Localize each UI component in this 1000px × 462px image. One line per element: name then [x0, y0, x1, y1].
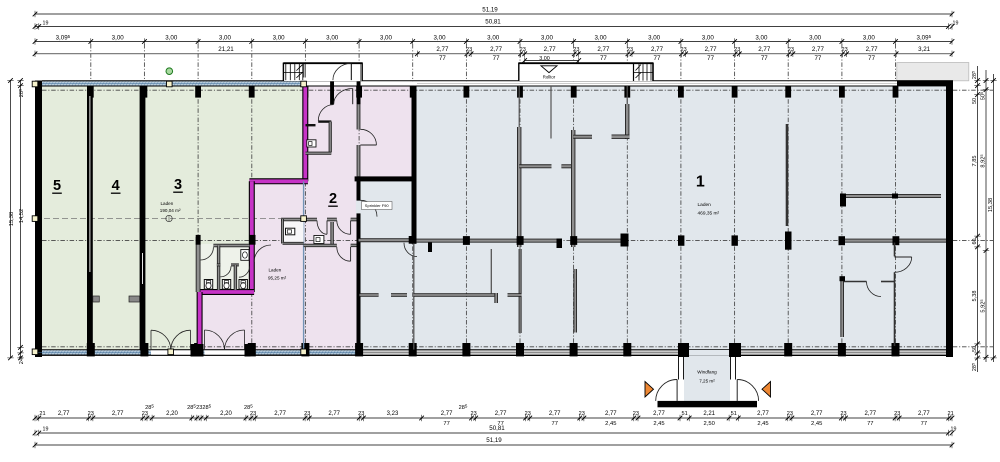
svg-text:51,19: 51,19 — [486, 437, 502, 444]
svg-text:23: 23 — [787, 411, 793, 417]
svg-text:15,38: 15,38 — [988, 198, 994, 213]
svg-text:77: 77 — [921, 421, 927, 427]
svg-text:23: 23 — [841, 47, 847, 53]
svg-text:7,85: 7,85 — [972, 156, 978, 167]
svg-text:77: 77 — [814, 55, 821, 62]
svg-text:3,00: 3,00 — [863, 34, 876, 41]
svg-text:Laden: Laden — [161, 201, 174, 206]
svg-text:2,77: 2,77 — [705, 46, 718, 53]
svg-text:2,77: 2,77 — [918, 411, 930, 417]
svg-text:51: 51 — [681, 411, 687, 417]
svg-text:3,00: 3,00 — [219, 34, 232, 41]
svg-text:21,21: 21,21 — [218, 46, 234, 53]
svg-text:2: 2 — [329, 191, 337, 207]
svg-text:1: 1 — [696, 174, 705, 191]
svg-text:23: 23 — [840, 411, 846, 417]
svg-text:77: 77 — [551, 421, 557, 427]
svg-text:3,00: 3,00 — [326, 34, 339, 41]
svg-text:2,77: 2,77 — [605, 411, 617, 417]
svg-text:Rolltor: Rolltor — [543, 75, 556, 80]
svg-text:2,77: 2,77 — [758, 46, 771, 53]
svg-text:3,00: 3,00 — [433, 34, 446, 41]
svg-text:2,77: 2,77 — [495, 411, 507, 417]
svg-text:2,77: 2,77 — [549, 411, 561, 417]
svg-text:2,77: 2,77 — [866, 46, 879, 53]
svg-text:23: 23 — [633, 411, 639, 417]
svg-text:3,00: 3,00 — [165, 34, 178, 41]
svg-text:2,77: 2,77 — [757, 411, 769, 417]
svg-text:23: 23 — [894, 411, 900, 417]
svg-text:5: 5 — [53, 178, 61, 194]
svg-text:2,77: 2,77 — [597, 46, 610, 53]
svg-text:21: 21 — [39, 411, 45, 417]
svg-text:77: 77 — [707, 55, 714, 62]
svg-text:23: 23 — [470, 411, 476, 417]
svg-text:23: 23 — [466, 47, 472, 53]
svg-text:21: 21 — [947, 411, 953, 417]
svg-text:3,00: 3,00 — [702, 34, 715, 41]
svg-text:50: 50 — [972, 98, 978, 104]
svg-text:2,77: 2,77 — [112, 411, 124, 417]
svg-text:23: 23 — [734, 47, 740, 53]
svg-text:23: 23 — [525, 411, 531, 417]
svg-text:2,77: 2,77 — [490, 46, 503, 53]
svg-text:3,23: 3,23 — [387, 411, 399, 417]
svg-text:23: 23 — [250, 411, 256, 417]
svg-text:2,20: 2,20 — [166, 411, 178, 417]
svg-text:3,00: 3,00 — [380, 34, 393, 41]
svg-text:3,00: 3,00 — [594, 34, 607, 41]
svg-text:23: 23 — [358, 411, 364, 417]
svg-text:4: 4 — [112, 178, 120, 194]
svg-text:19: 19 — [43, 427, 49, 433]
svg-text:190,04 m²: 190,04 m² — [160, 208, 181, 213]
svg-text:23: 23 — [520, 47, 526, 53]
svg-text:2,77: 2,77 — [812, 46, 825, 53]
svg-text:2,45: 2,45 — [653, 421, 664, 427]
svg-text:77: 77 — [443, 421, 449, 427]
svg-text:2,77: 2,77 — [274, 411, 286, 417]
svg-text:77: 77 — [761, 55, 768, 62]
svg-text:23: 23 — [573, 47, 579, 53]
svg-text:2,77: 2,77 — [441, 411, 453, 417]
svg-text:23: 23 — [304, 411, 310, 417]
svg-text:19: 19 — [953, 21, 959, 27]
svg-text:19: 19 — [43, 21, 49, 27]
svg-text:2,77: 2,77 — [328, 411, 340, 417]
svg-text:15,38: 15,38 — [9, 212, 15, 227]
svg-text:3,00: 3,00 — [541, 34, 554, 41]
svg-text:7,25 m²: 7,25 m² — [699, 379, 715, 384]
svg-text:50,81: 50,81 — [485, 19, 501, 26]
svg-text:77: 77 — [493, 55, 500, 62]
svg-text:3,00: 3,00 — [112, 34, 125, 41]
svg-text:2,77: 2,77 — [436, 46, 449, 53]
svg-text:Windfang: Windfang — [697, 370, 717, 375]
svg-text:2,45: 2,45 — [811, 421, 822, 427]
svg-text:5,38: 5,38 — [972, 291, 978, 302]
svg-text:23: 23 — [196, 405, 202, 411]
svg-text:2,21: 2,21 — [703, 411, 715, 417]
svg-text:2,77: 2,77 — [653, 411, 665, 417]
svg-text:2,50: 2,50 — [704, 421, 715, 427]
svg-text:3: 3 — [174, 177, 182, 193]
svg-text:469,35 m²: 469,35 m² — [698, 210, 720, 216]
svg-text:3,00: 3,00 — [539, 56, 550, 62]
svg-text:2,77: 2,77 — [811, 411, 823, 417]
svg-text:19: 19 — [951, 427, 957, 433]
svg-text:2,77: 2,77 — [58, 411, 70, 417]
svg-text:Laden: Laden — [269, 267, 282, 272]
svg-text:77: 77 — [867, 421, 873, 427]
svg-text:14,52: 14,52 — [19, 209, 25, 224]
svg-text:3,00: 3,00 — [648, 34, 661, 41]
svg-text:23: 23 — [88, 411, 94, 417]
svg-text:77: 77 — [439, 55, 446, 62]
svg-text:95,25 m²: 95,25 m² — [268, 275, 287, 280]
svg-text:51: 51 — [731, 411, 737, 417]
svg-text:2,77: 2,77 — [544, 46, 557, 53]
svg-text:23: 23 — [142, 411, 148, 417]
svg-text:2,77: 2,77 — [864, 411, 876, 417]
svg-text:77: 77 — [600, 55, 607, 62]
svg-text:60: 60 — [972, 239, 978, 245]
svg-text:23: 23 — [788, 47, 794, 53]
svg-text:23: 23 — [680, 47, 686, 53]
svg-text:23: 23 — [627, 47, 633, 53]
svg-text:Sprinkler F90: Sprinkler F90 — [365, 203, 390, 208]
svg-text:77: 77 — [868, 55, 875, 62]
svg-text:50,81: 50,81 — [489, 425, 505, 432]
svg-text:77: 77 — [654, 55, 661, 62]
svg-text:2,45: 2,45 — [757, 421, 768, 427]
svg-text:2,45: 2,45 — [605, 421, 616, 427]
svg-text:23: 23 — [579, 411, 585, 417]
svg-text:3,00: 3,00 — [487, 34, 500, 41]
svg-text:3,00: 3,00 — [273, 34, 286, 41]
svg-text:Laden: Laden — [698, 202, 712, 208]
svg-text:2,77: 2,77 — [651, 46, 664, 53]
svg-text:3,00: 3,00 — [809, 34, 822, 41]
svg-text:2,20: 2,20 — [220, 411, 232, 417]
svg-text:3,00: 3,00 — [755, 34, 768, 41]
svg-text:51,19: 51,19 — [482, 7, 498, 14]
svg-text:3,21: 3,21 — [918, 46, 931, 53]
